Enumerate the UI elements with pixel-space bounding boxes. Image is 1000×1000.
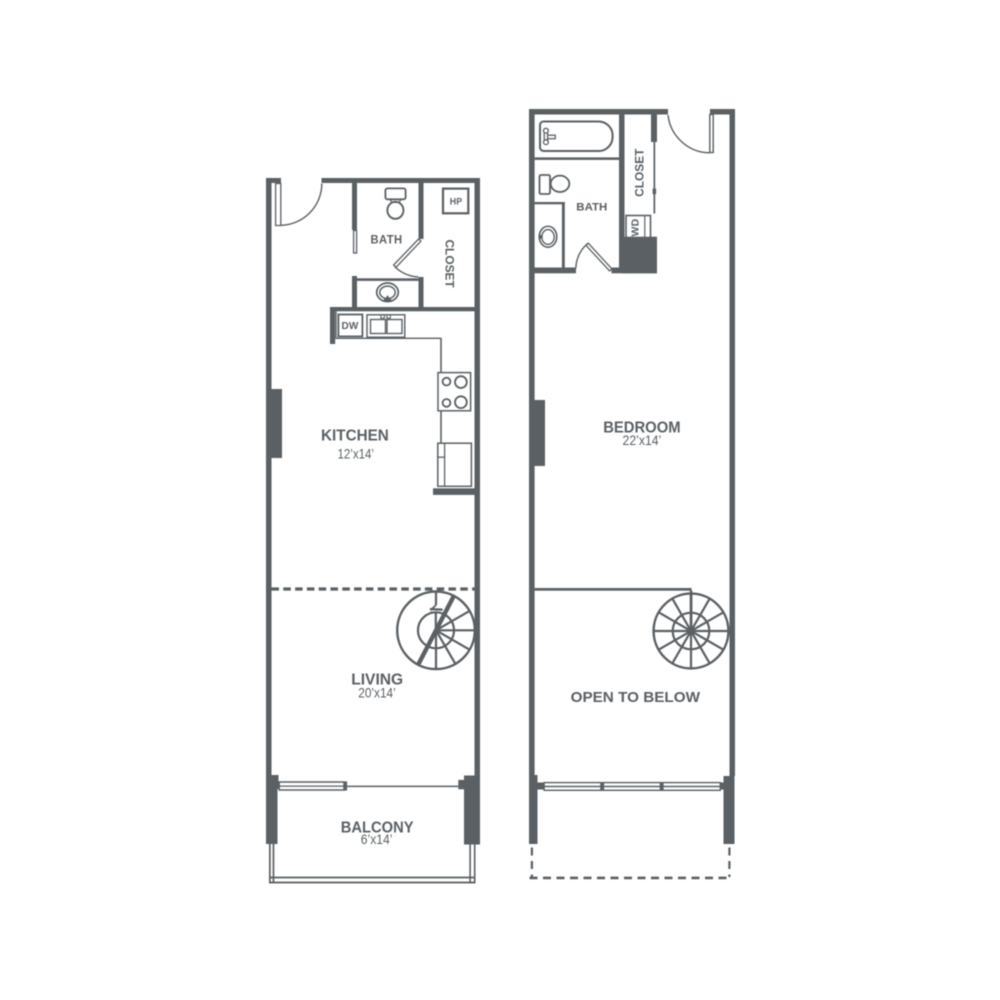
svg-text:22’x14’: 22’x14’ — [623, 433, 662, 448]
svg-text:BATH: BATH — [370, 233, 402, 247]
svg-text:CLOSET: CLOSET — [443, 239, 457, 288]
svg-text:CLOSET: CLOSET — [633, 148, 647, 197]
svg-text:BATH: BATH — [576, 202, 607, 214]
svg-text:DW: DW — [341, 321, 358, 332]
svg-text:OPEN TO BELOW: OPEN TO BELOW — [571, 690, 700, 706]
svg-text:20’x14’: 20’x14’ — [358, 685, 396, 700]
svg-text:KITCHEN: KITCHEN — [321, 428, 389, 445]
svg-text:HP: HP — [450, 197, 463, 207]
svg-text:12’x14’: 12’x14’ — [338, 447, 374, 462]
svg-text:WD: WD — [630, 218, 642, 236]
svg-text:6’x14’: 6’x14’ — [361, 832, 393, 847]
